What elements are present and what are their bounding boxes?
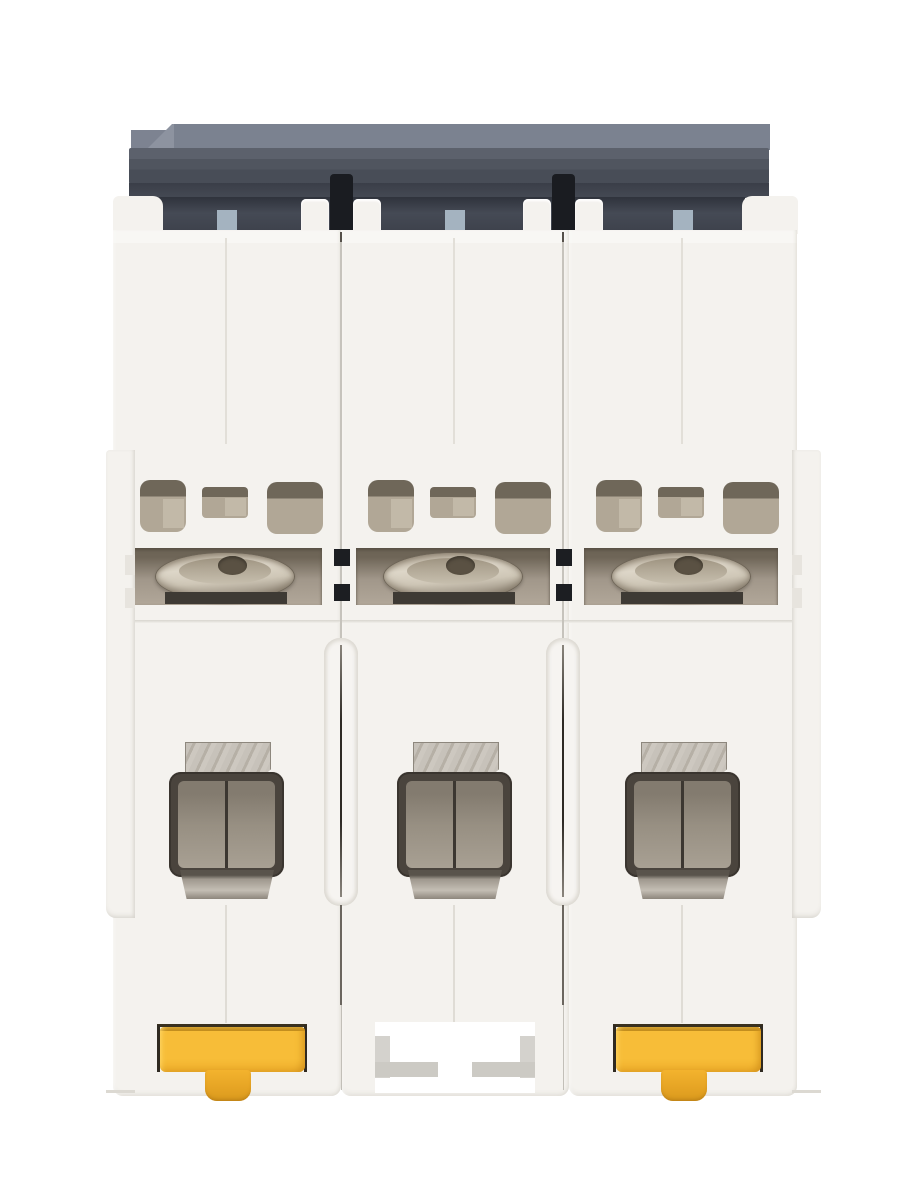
clamp-plate xyxy=(393,592,515,604)
seam-tab xyxy=(523,199,551,233)
module-seam xyxy=(563,1005,564,1090)
module-seam xyxy=(341,1005,342,1090)
seam-tab xyxy=(353,199,381,233)
vent-opening xyxy=(430,487,476,518)
terminal-screw-recess xyxy=(584,548,778,605)
housing-shoulder-right xyxy=(742,196,798,234)
vent-opening xyxy=(658,487,704,518)
module-seam xyxy=(562,905,564,1005)
flange-ledge xyxy=(106,1090,135,1093)
seam-tab xyxy=(301,199,329,233)
box-clamp-terminal xyxy=(397,772,512,877)
pole-module-2 xyxy=(341,230,569,1096)
vent-opening xyxy=(140,480,186,532)
mold-seam xyxy=(453,238,455,444)
mold-seam xyxy=(453,905,455,1023)
cap-top-face xyxy=(146,124,770,150)
seam-clip-mark xyxy=(334,584,350,601)
din-rail-clip xyxy=(616,1027,761,1072)
module-face xyxy=(569,230,797,1096)
mold-seam xyxy=(225,905,227,1023)
housing-shoulder-left xyxy=(113,196,163,234)
terminal-screw-recess xyxy=(128,548,322,605)
mold-seam xyxy=(681,238,683,444)
housing-ledge xyxy=(341,620,569,623)
module-face xyxy=(113,230,341,1096)
din-rail-clip-stem xyxy=(661,1070,707,1101)
box-clamp-terminal xyxy=(625,772,740,877)
mold-seam xyxy=(225,238,227,444)
pole-module-1 xyxy=(113,230,341,1096)
module-seam xyxy=(340,905,342,1005)
vent-opening xyxy=(267,482,323,534)
housing-ledge xyxy=(569,620,797,623)
inter-module-clip xyxy=(330,174,353,233)
terminal-clamp-metal xyxy=(408,870,502,899)
flange-notch xyxy=(125,588,135,608)
cap-front-bar xyxy=(129,148,769,184)
module-seam xyxy=(562,232,564,638)
flange-ledge xyxy=(792,1090,821,1093)
inter-module-clip xyxy=(552,174,575,233)
module-seam xyxy=(340,232,342,638)
seam-clip-mark xyxy=(556,584,572,601)
vent-opening xyxy=(495,482,551,534)
housing-ledge xyxy=(113,620,341,623)
notch-shading xyxy=(375,1062,438,1077)
din-rail-clip-stem xyxy=(205,1070,251,1101)
cap-bottom-lip xyxy=(129,183,769,198)
photo-canvas xyxy=(0,0,900,1200)
seam-clip-mark xyxy=(334,549,350,566)
din-latch-notch xyxy=(375,1022,535,1093)
terminal-divider xyxy=(453,781,456,868)
terminal-screw-recess xyxy=(356,548,550,605)
seam-clip-mark xyxy=(556,549,572,566)
pole-module-3 xyxy=(569,230,797,1096)
flange-notch xyxy=(792,588,802,608)
vent-opening xyxy=(368,480,414,532)
module-face xyxy=(341,230,569,1096)
module-seam xyxy=(340,645,342,897)
terminal-divider xyxy=(225,781,228,868)
flange-notch xyxy=(792,555,802,575)
vent-opening xyxy=(596,480,642,532)
box-clamp-terminal xyxy=(169,772,284,877)
terminal-clamp-metal xyxy=(636,870,730,899)
terminal-divider xyxy=(681,781,684,868)
terminal-clamp-metal xyxy=(180,870,274,899)
flange-notch xyxy=(125,555,135,575)
clamp-plate xyxy=(621,592,743,604)
seam-tab xyxy=(575,199,603,233)
clamp-plate xyxy=(165,592,287,604)
din-rail-clip xyxy=(160,1027,305,1072)
notch-shading xyxy=(472,1062,535,1077)
vent-opening xyxy=(723,482,779,534)
vent-opening xyxy=(202,487,248,518)
module-seam xyxy=(562,645,564,897)
side-flange-right xyxy=(792,450,821,918)
mold-seam xyxy=(681,905,683,1023)
side-flange-left xyxy=(106,450,135,918)
